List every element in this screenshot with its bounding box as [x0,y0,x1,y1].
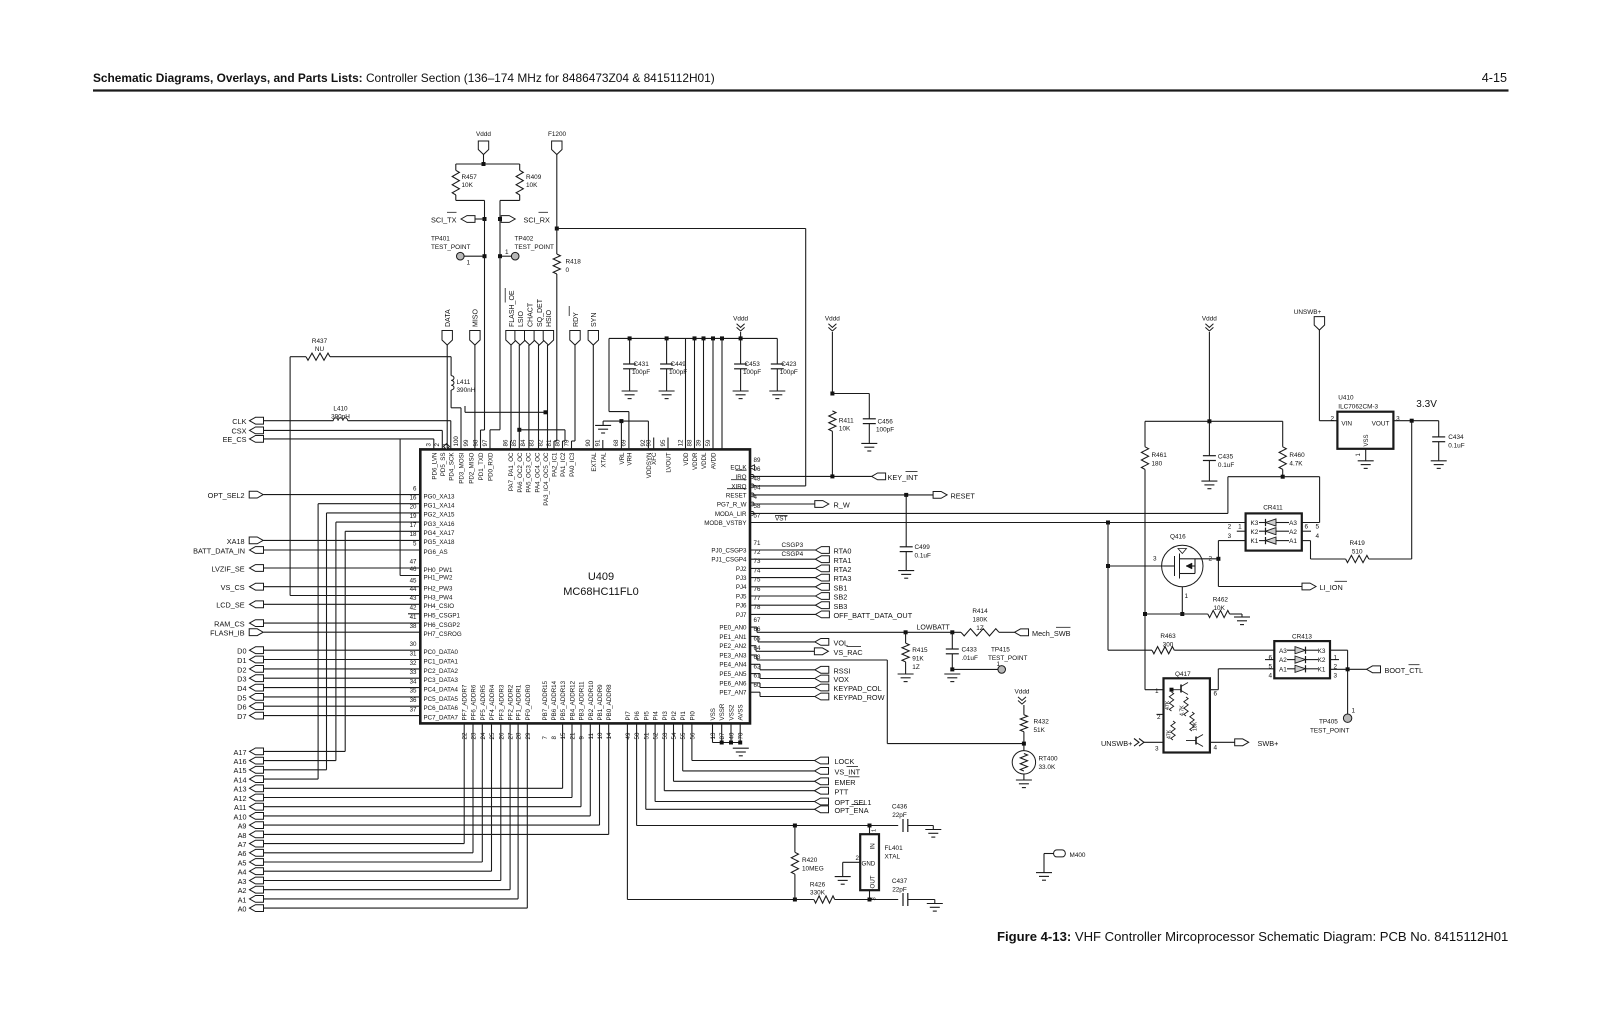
svg-text:CSGP4: CSGP4 [782,551,804,558]
svg-text:D5: D5 [237,693,246,702]
svg-text:25: 25 [489,732,496,739]
svg-text:PC2_DATA2: PC2_DATA2 [424,668,459,675]
svg-text:D4: D4 [237,684,246,693]
svg-text:PC4_DATA4: PC4_DATA4 [424,687,459,694]
svg-text:PI2: PI2 [671,711,678,721]
svg-text:PF4_ADDR4: PF4_ADDR4 [489,684,496,720]
svg-text:0: 0 [566,267,570,274]
svg-text:0.1uF: 0.1uF [915,553,931,560]
svg-text:10K: 10K [839,426,851,433]
svg-text:TP401: TP401 [431,236,450,243]
svg-text:45: 45 [410,577,417,584]
svg-text:KEYPAD_COL: KEYPAD_COL [834,684,882,693]
svg-text:R437: R437 [312,338,328,345]
svg-text:Figure 4-13: VHF Controller Mi: Figure 4-13: VHF Controller Mircoprocess… [997,929,1508,944]
svg-text:SB2: SB2 [834,593,848,602]
svg-text:1: 1 [443,443,450,447]
svg-text:1: 1 [1356,453,1362,457]
svg-text:PA6_OC2_OC: PA6_OC2_OC [517,452,524,493]
svg-text:4.7K: 4.7K [1289,461,1303,468]
svg-text:K3: K3 [1318,648,1326,655]
svg-text:1: 1 [467,260,471,267]
svg-text:10K: 10K [1214,605,1226,612]
svg-text:100pF: 100pF [743,369,761,376]
svg-text:22: 22 [462,732,469,739]
svg-text:A6: A6 [238,849,247,858]
svg-text:L411: L411 [457,379,471,386]
svg-text:4: 4 [1316,533,1320,540]
svg-text:6: 6 [1268,654,1272,661]
svg-text:R463: R463 [1160,633,1176,640]
svg-text:PB3_ADDR11: PB3_ADDR11 [579,681,586,721]
svg-text:7: 7 [542,736,549,740]
svg-text:100: 100 [453,436,460,447]
svg-text:C453: C453 [745,361,761,368]
svg-text:6: 6 [413,485,417,492]
svg-text:PC6_DATA6: PC6_DATA6 [424,705,459,712]
svg-text:46: 46 [410,566,417,573]
svg-text:RT400: RT400 [1039,756,1059,763]
svg-text:A2: A2 [1289,529,1297,536]
svg-text:CR413: CR413 [1292,634,1312,641]
svg-text:D2: D2 [237,665,246,674]
svg-text:XFC: XFC [651,452,658,465]
svg-text:88: 88 [686,439,693,446]
svg-text:PE2_AN2: PE2_AN2 [719,643,747,650]
svg-text:39: 39 [695,439,702,446]
svg-text:A3: A3 [1279,648,1287,655]
svg-text:59: 59 [705,439,712,446]
svg-text:CLK: CLK [232,417,246,426]
svg-text:PD1_TXD: PD1_TXD [478,452,485,480]
svg-text:PA7_PA1_OC: PA7_PA1_OC [508,452,515,491]
svg-text:PF2_ADDR2: PF2_ADDR2 [508,684,515,720]
svg-text:C434: C434 [1448,434,1464,441]
svg-text:91K: 91K [912,656,924,663]
svg-text:A1: A1 [238,895,247,904]
svg-text:1: 1 [872,829,878,832]
svg-text:PB7_ADDR15: PB7_ADDR15 [542,680,549,720]
svg-text:PA0_IC3: PA0_IC3 [569,452,576,477]
svg-text:PI0: PI0 [689,711,696,721]
svg-text:C433: C433 [962,647,978,654]
svg-text:PF3_ADDR3: PF3_ADDR3 [498,684,505,720]
svg-text:330K: 330K [810,890,826,897]
svg-text:PJ1_CSGP4: PJ1_CSGP4 [711,557,747,564]
svg-text:A3: A3 [1289,520,1297,527]
svg-text:PTT: PTT [835,787,849,796]
svg-text:MODA_LIR: MODA_LIR [715,511,747,518]
svg-text:PH7_CSROG: PH7_CSROG [424,631,462,638]
svg-text:99: 99 [463,439,470,446]
svg-text:ECLK: ECLK [730,465,747,472]
svg-text:100pF: 100pF [876,427,894,434]
svg-text:10: 10 [597,732,604,739]
svg-text:TP415: TP415 [991,647,1010,654]
svg-text:47K: 47K [1166,729,1172,739]
svg-text:VSSR: VSSR [719,703,726,720]
svg-text:R419: R419 [1350,540,1366,547]
svg-text:85: 85 [511,439,518,446]
svg-text:3: 3 [1228,533,1232,540]
svg-text:70: 70 [738,732,745,739]
svg-text:33.0K: 33.0K [1039,764,1056,771]
svg-text:VRH: VRH [626,453,633,466]
svg-text:L410: L410 [333,406,348,413]
svg-text:PH3_PW4: PH3_PW4 [424,594,453,601]
svg-text:A7: A7 [238,840,247,849]
svg-text:18: 18 [410,531,417,538]
svg-text:36: 36 [410,697,417,704]
svg-text:TP405: TP405 [1319,719,1338,726]
svg-text:100pF: 100pF [669,369,687,376]
svg-text:VRL: VRL [619,452,626,465]
svg-text:RTA0: RTA0 [834,547,852,556]
svg-text:U409: U409 [588,571,614,583]
svg-text:K3: K3 [1251,520,1259,527]
svg-text:PC3_DATA3: PC3_DATA3 [424,677,459,684]
svg-text:3: 3 [1153,556,1157,563]
svg-text:D7: D7 [237,712,246,721]
svg-text:PC0_DATA0: PC0_DATA0 [424,649,459,656]
svg-text:38: 38 [410,623,417,630]
svg-text:2: 2 [434,443,441,447]
svg-text:VOL: VOL [834,639,849,648]
svg-text:A10: A10 [234,812,247,821]
svg-text:PB2_ADDR10: PB2_ADDR10 [588,680,595,720]
svg-text:0.1uF: 0.1uF [1218,462,1234,469]
svg-text:D0: D0 [237,647,246,656]
svg-text:R414: R414 [972,608,988,615]
svg-text:MODB_VSTBY: MODB_VSTBY [704,520,746,527]
svg-text:IN: IN [870,843,877,849]
svg-text:R432: R432 [1034,719,1050,726]
svg-text:OPT_SEL2: OPT_SEL2 [208,491,245,500]
svg-text:SYN: SYN [591,313,598,327]
svg-text:K2: K2 [1251,529,1259,536]
svg-text:DATA: DATA [445,309,452,327]
svg-text:PH0_PW1: PH0_PW1 [424,567,453,574]
svg-text:3: 3 [1155,746,1159,753]
svg-text:KEY_INT: KEY_INT [888,473,919,482]
svg-text:OUT: OUT [870,875,877,888]
svg-text:C423: C423 [781,361,797,368]
svg-text:LSIO: LSIO [518,310,525,327]
svg-text:CR411: CR411 [1263,505,1283,512]
svg-text:67: 67 [754,617,761,624]
svg-text:SB3: SB3 [834,602,848,611]
svg-text:RAM_CS: RAM_CS [214,620,245,629]
svg-text:PH4_CSIO: PH4_CSIO [424,603,455,610]
svg-text:A5: A5 [238,858,247,867]
svg-text:A3: A3 [238,877,247,886]
svg-text:VDD: VDD [683,452,690,466]
svg-text:4.7K: 4.7K [1179,705,1185,716]
svg-text:79: 79 [563,439,570,446]
svg-text:PH6_CSGP2: PH6_CSGP2 [424,622,461,629]
svg-text:K2: K2 [1318,657,1326,664]
svg-text:RTA3: RTA3 [834,574,852,583]
svg-text:3.3V: 3.3V [1416,399,1437,410]
svg-text:100pF: 100pF [780,369,798,376]
svg-text:52: 52 [653,732,660,739]
svg-text:53: 53 [662,732,669,739]
svg-text:24: 24 [480,732,487,739]
svg-text:PA2_IC1: PA2_IC1 [552,452,559,477]
svg-text:10K: 10K [462,182,474,189]
svg-text:EXTAL: EXTAL [591,452,598,472]
svg-text:44: 44 [410,586,417,593]
svg-text:PJ3: PJ3 [736,575,747,582]
svg-text:2: 2 [1157,714,1161,721]
svg-text:PE5_AN5: PE5_AN5 [719,671,747,678]
svg-text:16: 16 [410,494,417,501]
svg-text:13: 13 [710,732,717,739]
svg-text:PF5_ADDR5: PF5_ADDR5 [480,684,487,720]
svg-text:A0: A0 [238,905,247,914]
svg-text:PJ7: PJ7 [736,612,747,619]
svg-text:VOX: VOX [834,675,850,684]
svg-text:51: 51 [643,732,650,739]
svg-text:PG4_XA17: PG4_XA17 [424,530,456,537]
svg-text:FLASH_OE: FLASH_OE [509,290,516,327]
svg-text:A1: A1 [1279,666,1287,673]
svg-text:68: 68 [613,439,620,446]
svg-text:47K: 47K [1165,700,1171,710]
svg-text:K1: K1 [1251,538,1259,545]
svg-text:SB1: SB1 [834,583,848,592]
svg-text:PA1_IC2: PA1_IC2 [560,452,567,477]
svg-text:D3: D3 [237,675,246,684]
svg-text:91: 91 [595,439,602,446]
svg-text:1: 1 [997,661,1001,668]
svg-text:VDDR: VDDR [692,452,699,470]
svg-text:EMER: EMER [835,778,856,787]
svg-text:RDY: RDY [573,312,580,327]
svg-text:EE_CS: EE_CS [223,435,247,444]
svg-text:VOUT: VOUT [1372,420,1390,427]
svg-text:R420: R420 [802,857,818,864]
svg-text:PA5_OC3_OC: PA5_OC3_OC [526,452,533,493]
svg-text:UNSWB+: UNSWB+ [1101,739,1132,748]
svg-text:2: 2 [856,855,860,862]
svg-text:PE6_AN6: PE6_AN6 [719,680,747,687]
svg-text:SQ_DET: SQ_DET [537,298,544,327]
svg-text:93: 93 [646,439,653,446]
svg-text:RTA1: RTA1 [834,556,852,565]
svg-text:4: 4 [1214,745,1218,752]
svg-text:29: 29 [525,732,532,739]
svg-text:PF0_ADDR0: PF0_ADDR0 [525,684,532,720]
svg-text:43: 43 [410,595,417,602]
svg-text:SWB+: SWB+ [1258,739,1279,748]
svg-text:KEYPAD_ROW: KEYPAD_ROW [834,693,885,702]
svg-text:22pF: 22pF [892,812,907,819]
svg-text:TEST_POINT: TEST_POINT [515,244,555,251]
svg-text:34: 34 [410,678,417,685]
svg-text:41: 41 [410,614,417,621]
svg-text:VS_INT: VS_INT [835,768,861,777]
svg-text:23: 23 [471,732,478,739]
svg-text:VDDL: VDDL [701,452,708,469]
svg-text:FL401: FL401 [885,845,904,852]
svg-text:PD0_RXD: PD0_RXD [488,452,495,481]
svg-text:CSGP3: CSGP3 [782,542,804,549]
svg-text:180: 180 [1152,461,1163,468]
svg-text:C437: C437 [892,878,908,885]
svg-text:LOCK: LOCK [835,757,855,766]
svg-text:SCI_RX: SCI_RX [524,215,550,224]
svg-text:VS_CS: VS_CS [221,583,245,592]
svg-text:100pF: 100pF [632,369,650,376]
svg-text:RTA2: RTA2 [834,565,852,574]
svg-text:C449: C449 [671,361,687,368]
svg-text:PD6_LVN: PD6_LVN [431,453,438,480]
svg-text:A8: A8 [238,831,247,840]
svg-text:PB6_ADDR14: PB6_ADDR14 [551,680,558,720]
svg-text:30: 30 [410,641,417,648]
svg-text:VST: VST [775,515,788,522]
svg-text:C435: C435 [1218,454,1234,461]
svg-text:PB1_ADDR9: PB1_ADDR9 [597,684,604,721]
svg-text:31: 31 [410,651,417,658]
svg-text:33: 33 [410,669,417,676]
svg-text:M400: M400 [1070,852,1086,859]
svg-text:.01uF: .01uF [962,655,978,662]
svg-text:XTAL: XTAL [600,452,607,468]
svg-text:HSIO: HSIO [546,309,553,327]
svg-text:RESET: RESET [951,491,976,500]
svg-text:PI7: PI7 [625,711,632,721]
svg-text:OFF_BATT_DATA_OUT: OFF_BATT_DATA_OUT [834,611,913,620]
svg-text:LVZIF_SE: LVZIF_SE [211,564,244,573]
svg-text:3: 3 [872,897,878,900]
svg-text:PA3_IC4_OC5_OC: PA3_IC4_OC5_OC [543,452,550,506]
svg-text:71: 71 [754,540,761,547]
svg-text:4: 4 [1268,673,1272,680]
svg-text:PE4_AN4: PE4_AN4 [719,662,747,669]
svg-text:8: 8 [551,736,558,740]
svg-text:89: 89 [754,457,761,464]
svg-text:6: 6 [1214,691,1218,698]
svg-text:R415: R415 [912,647,928,654]
svg-text:GND: GND [862,861,876,868]
svg-text:VS_RAC: VS_RAC [834,648,863,657]
svg-text:A12: A12 [234,794,247,803]
svg-text:27: 27 [508,732,515,739]
svg-text:PI4: PI4 [653,711,660,721]
svg-text:R461: R461 [1152,452,1168,459]
svg-text:3: 3 [426,443,433,447]
svg-text:A11: A11 [234,803,246,812]
svg-text:83: 83 [529,439,536,446]
svg-text:97: 97 [482,439,489,446]
svg-text:21: 21 [570,732,577,739]
svg-text:PB4_ADDR12: PB4_ADDR12 [570,680,577,720]
svg-text:PG6_AS: PG6_AS [424,549,448,556]
svg-text:PC7_DATA7: PC7_DATA7 [424,714,459,721]
svg-text:PJ4: PJ4 [736,584,747,591]
svg-text:TEST_POINT: TEST_POINT [1310,727,1350,734]
svg-text:Vddd: Vddd [825,315,840,322]
svg-text:PE3_AN3: PE3_AN3 [719,652,747,659]
svg-text:LCD_SE: LCD_SE [216,601,245,610]
svg-text:5: 5 [413,541,417,548]
svg-text:1Z: 1Z [912,664,920,671]
svg-text:Schematic Diagrams, Overlays,: Schematic Diagrams, Overlays, and Parts … [93,71,715,85]
svg-text:A13: A13 [234,785,247,794]
svg-text:MISO: MISO [473,309,480,327]
svg-text:R418: R418 [566,259,582,266]
svg-text:TEST_POINT: TEST_POINT [431,244,471,251]
svg-text:AVSS: AVSS [738,704,745,720]
svg-text:17: 17 [410,522,417,529]
svg-text:Vddd: Vddd [733,315,748,322]
svg-text:32: 32 [410,660,417,667]
svg-text:PG2_XA15: PG2_XA15 [424,512,456,519]
svg-text:5: 5 [1268,664,1272,671]
svg-text:90: 90 [585,439,592,446]
svg-text:RESET: RESET [726,492,747,499]
svg-text:PJ2: PJ2 [736,566,747,573]
svg-text:D1: D1 [237,656,246,665]
svg-text:R462: R462 [1213,597,1229,604]
svg-text:4-15: 4-15 [1482,71,1507,85]
svg-text:NU: NU [315,346,325,353]
svg-text:PB5_ADDR13: PB5_ADDR13 [560,680,567,720]
svg-text:Q416: Q416 [1170,534,1186,541]
svg-text:PH1_PW2: PH1_PW2 [424,574,453,581]
svg-text:R460: R460 [1289,452,1305,459]
svg-text:PG3_XA16: PG3_XA16 [424,521,456,528]
svg-text:PD3_MOSI: PD3_MOSI [459,452,466,484]
svg-text:VSS: VSS [710,708,717,720]
svg-text:PD5_SS: PD5_SS [440,453,447,477]
svg-text:86: 86 [502,439,509,446]
svg-text:R457: R457 [462,174,478,181]
svg-text:35: 35 [410,688,417,695]
svg-text:10MEG: 10MEG [802,866,824,873]
svg-text:28: 28 [516,732,523,739]
svg-text:A1: A1 [1289,538,1297,545]
svg-text:42: 42 [410,605,417,612]
svg-text:1: 1 [1352,708,1356,715]
svg-text:55: 55 [680,732,687,739]
svg-text:D6: D6 [237,703,246,712]
svg-text:UNSWB+: UNSWB+ [1294,309,1322,316]
svg-text:PI5: PI5 [643,711,650,721]
svg-text:A2: A2 [238,886,247,895]
svg-text:26: 26 [498,732,505,739]
svg-text:3: 3 [1334,673,1338,680]
svg-text:C499: C499 [915,544,931,551]
svg-text:XA18: XA18 [227,537,245,546]
svg-text:1: 1 [1185,593,1189,600]
svg-text:A14: A14 [234,776,247,785]
svg-text:F1200: F1200 [548,131,567,138]
svg-text:37: 37 [410,706,417,713]
svg-text:11: 11 [588,733,595,740]
svg-text:PG7_R_W: PG7_R_W [717,501,747,508]
svg-text:PF1_ADDR1: PF1_ADDR1 [516,684,523,720]
svg-text:56: 56 [689,732,696,739]
svg-text:TEST_POINT: TEST_POINT [988,655,1028,662]
svg-text:PA4_OC4_OC: PA4_OC4_OC [534,452,541,493]
svg-text:20: 20 [410,504,417,511]
svg-text:PE7_AN7: PE7_AN7 [719,690,747,697]
svg-text:2: 2 [1330,416,1334,423]
svg-text:R426: R426 [810,882,826,889]
